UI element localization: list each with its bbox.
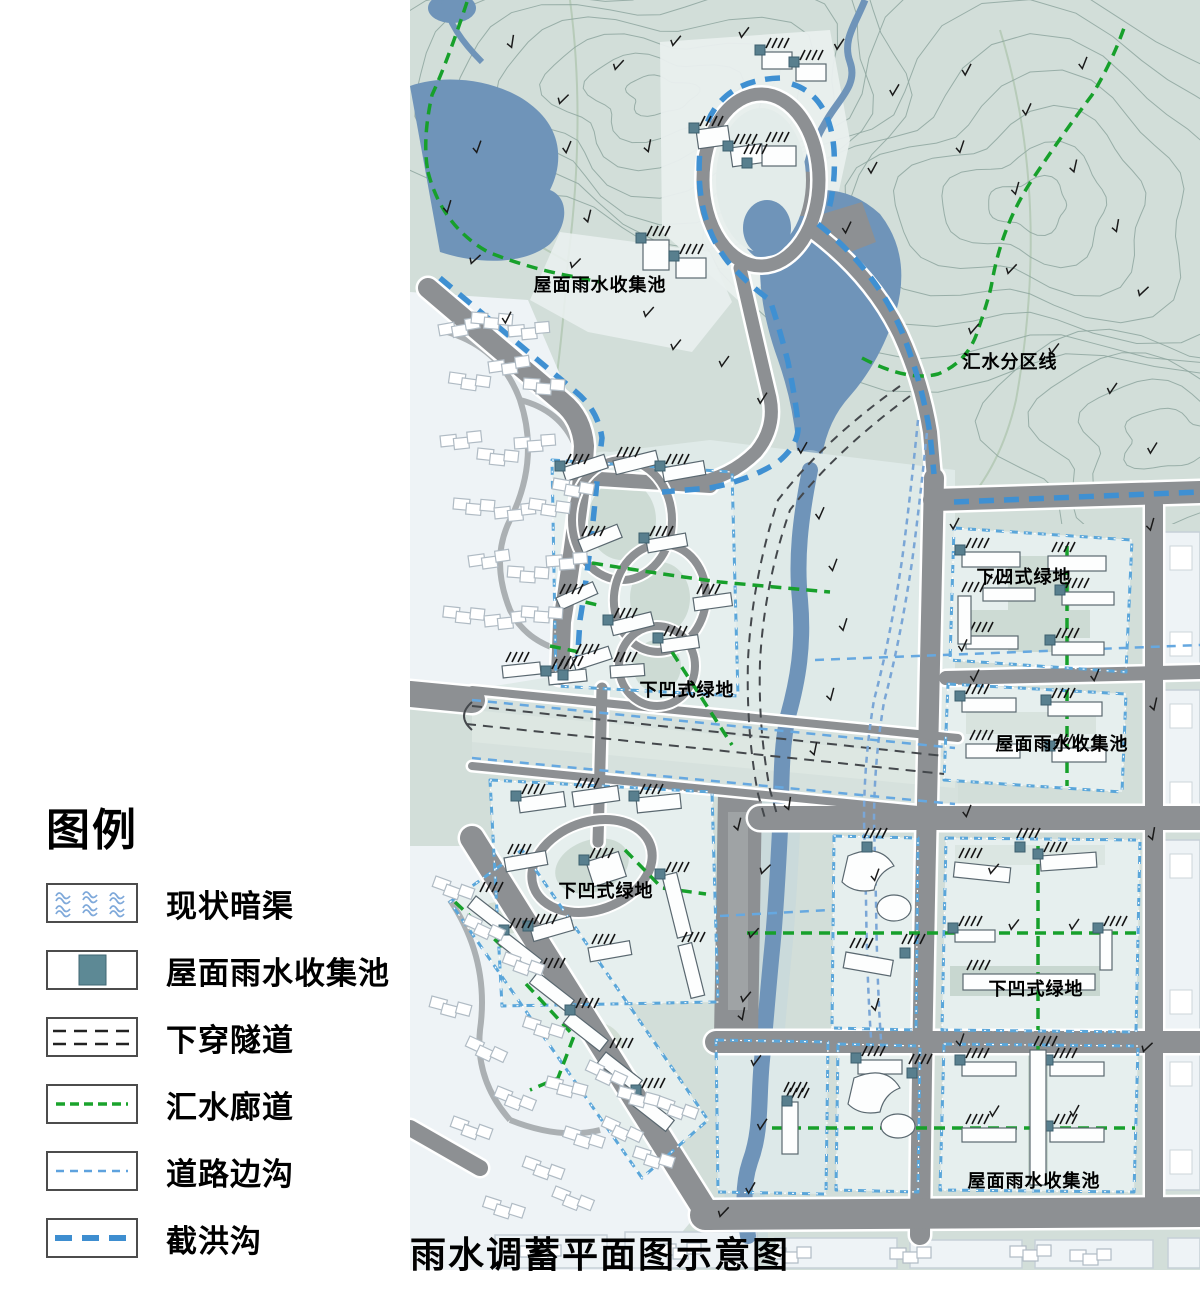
legend-item-underpass-tunnel: 下穿隧道 [46, 1016, 436, 1058]
legend-label: 道路边沟 [166, 1149, 294, 1194]
underpass-tunnel-icon [46, 1017, 138, 1057]
map-label-catchment-division: 汇水分区线 [963, 348, 1058, 374]
legend-panel: 图例 现状暗渠 [46, 794, 436, 1284]
map: 屋面雨水收集池汇水分区线下凹式绿地下凹式绿地屋面雨水收集池下凹式绿地下凹式绿地屋… [410, 0, 1200, 1289]
map-label-sunken-green-east: 下凹式绿地 [989, 975, 1084, 1001]
map-label-roof-pool-ne: 屋面雨水收集池 [996, 730, 1129, 756]
legend-item-catchment-corridor: 汇水廊道 [46, 1083, 436, 1125]
legend-item-road-side-ditch: 道路边沟 [46, 1150, 436, 1192]
map-label-roof-pool-top: 屋面雨水收集池 [534, 271, 667, 297]
legend-item-roof-rainwater-pool: 屋面雨水收集池 [46, 949, 436, 991]
catchment-corridor-icon [46, 1084, 138, 1124]
map-graphic [410, 0, 1200, 1270]
legend-label: 截洪沟 [166, 1216, 262, 1261]
flood-interception-ditch-icon [46, 1218, 138, 1258]
legend-label: 现状暗渠 [166, 881, 294, 926]
legend-label: 下穿隧道 [166, 1015, 294, 1060]
map-label-sunken-green-ne: 下凹式绿地 [977, 563, 1072, 589]
legend-item-flood-interception-ditch: 截洪沟 [46, 1217, 436, 1259]
map-label-sunken-green-park: 下凹式绿地 [640, 676, 735, 702]
legend-title: 图例 [46, 794, 436, 858]
roof-rainwater-pool-icon [46, 950, 138, 990]
legend-label: 汇水廊道 [166, 1082, 294, 1127]
existing-culvert-icon [46, 883, 138, 923]
legend-item-existing-culvert: 现状暗渠 [46, 882, 436, 924]
map-label-roof-pool-se: 屋面雨水收集池 [968, 1167, 1101, 1193]
legend-label: 屋面雨水收集池 [166, 948, 390, 993]
road-side-ditch-icon [46, 1151, 138, 1191]
map-title: 雨水调蓄平面图示意图 [410, 1226, 790, 1278]
page: 图例 现状暗渠 [0, 0, 1200, 1289]
map-label-sunken-green-west: 下凹式绿地 [559, 877, 654, 903]
